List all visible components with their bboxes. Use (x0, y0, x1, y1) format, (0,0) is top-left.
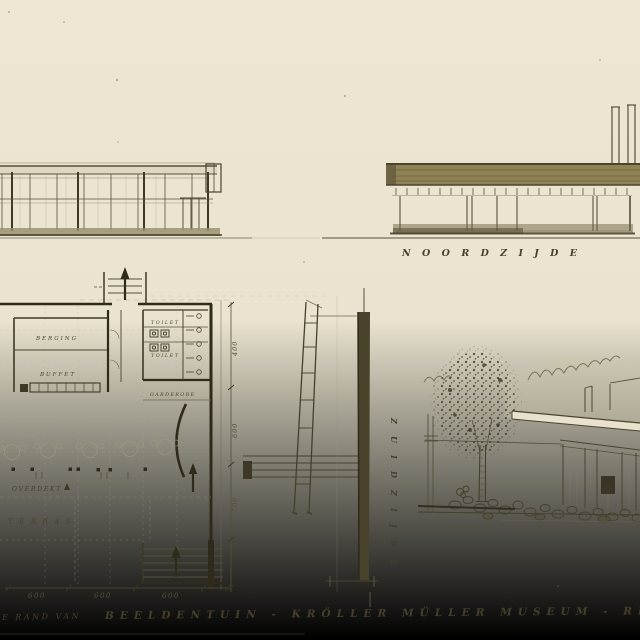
north-elevation-label: NOORDZIJDE (401, 248, 587, 259)
dim-right-3: 700 (231, 497, 239, 512)
roof-band (386, 164, 640, 185)
dim-bottom-2: 600 (94, 592, 112, 600)
terras-label: TERRAS (8, 518, 77, 526)
garderobe-label: GARDEROBE (150, 392, 195, 398)
toilet-top-label: TOILET (151, 320, 180, 326)
dark-doorway (601, 476, 615, 494)
dim-right-1: 400 (231, 341, 239, 357)
dim-bottom-3: 600 (162, 592, 180, 600)
section-vertical-label: ZUIDZIJDE (389, 417, 399, 576)
dim-bottom-1: 600 (28, 592, 46, 600)
architectural-drawing-sheet: NOORDZIJDE (0, 0, 640, 640)
title-left-fragment: E RAND VAN (1, 612, 81, 622)
mast-bar (358, 312, 370, 580)
buffet-label: BUFFET (39, 372, 76, 378)
drawing-svg: NOORDZIJDE (0, 0, 640, 640)
paper-background (0, 0, 640, 640)
toilet-bottom-label: TOILET (151, 353, 180, 359)
overdekt-label: OVERDEKT (12, 486, 62, 493)
berging-label: BERGING (35, 336, 78, 342)
dim-right-2: 600 (231, 423, 239, 438)
